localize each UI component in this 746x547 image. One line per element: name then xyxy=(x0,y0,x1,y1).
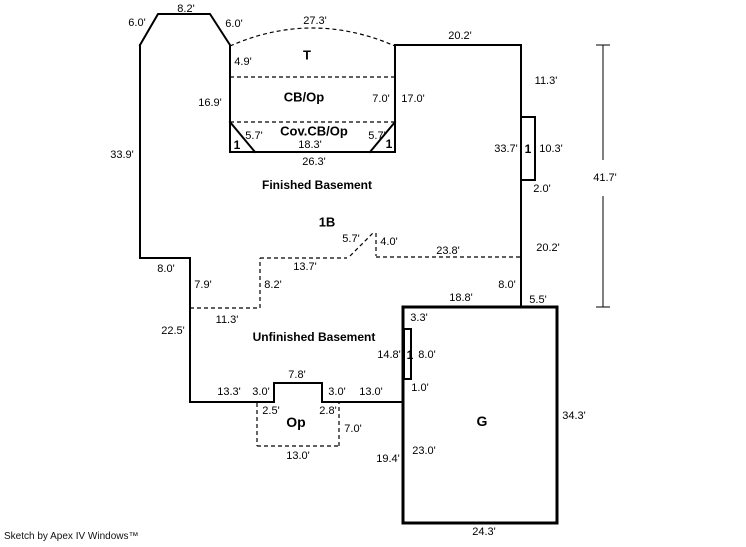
dim-deck-27-3: 27.3' xyxy=(303,15,327,27)
area-label-finished-basement: Finished Basement xyxy=(262,178,372,192)
dim-17-0: 17.0' xyxy=(401,93,425,105)
dim-3-0-right: 3.0' xyxy=(328,386,345,398)
area-label-cb-op: CB/Op xyxy=(284,90,325,105)
dim-13-0-bottom: 13.0' xyxy=(286,450,310,462)
dim-2-8: 2.8' xyxy=(319,405,336,417)
dim-13-3: 13.3' xyxy=(217,386,241,398)
dim-13-7: 13.7' xyxy=(293,261,317,273)
area-label-unfinished-basement: Unfinished Basement xyxy=(253,330,376,344)
area-label-op: Op xyxy=(286,414,305,430)
dim-3-0-left: 3.0' xyxy=(252,386,269,398)
dim-top-8-2: 8.2' xyxy=(177,3,194,15)
area-label-cov-cb-op: Cov.CB/Op xyxy=(280,124,348,139)
mark-1-port-right: 1 xyxy=(525,142,532,156)
dim-24-3: 24.3' xyxy=(472,526,496,538)
dim-18-8: 18.8' xyxy=(449,292,473,304)
mark-1-right: 1 xyxy=(386,137,393,151)
dim-8-0-left: 8.0' xyxy=(157,263,174,275)
dim-7-8: 7.8' xyxy=(288,369,305,381)
dim-4-9: 4.9' xyxy=(234,56,251,68)
dim-20-2-lower: 20.2' xyxy=(536,242,560,254)
dim-11-3-dashed: 11.3' xyxy=(216,314,239,326)
dim-1-0: 1.0' xyxy=(411,382,428,394)
dim-10-3: 10.3' xyxy=(539,143,563,155)
dim-33-7: 33.7' xyxy=(494,143,518,155)
floorplan-svg: 41.7'8.2'6.0'6.0'27.3'T4.9'CB/Op7.0'17.0… xyxy=(0,0,746,547)
floorplan-sketch: 41.7'8.2'6.0'6.0'27.3'T4.9'CB/Op7.0'17.0… xyxy=(0,0,746,547)
dim-2-0: 2.0' xyxy=(533,183,550,195)
dim-13-0-top: 13.0' xyxy=(359,386,383,398)
dim-19-4: 19.4' xyxy=(376,453,400,465)
dim-26-3: 26.3' xyxy=(302,156,326,168)
dim-33-9: 33.9' xyxy=(110,149,134,161)
dim-4-0: 4.0' xyxy=(380,236,397,248)
dim-slant-right-6-0: 6.0' xyxy=(225,18,242,30)
mark-1-port-garage: 1 xyxy=(407,348,414,362)
area-label-deck: T xyxy=(303,48,311,63)
dim-23-0: 23.0' xyxy=(412,445,436,457)
sketch-credit: Sketch by Apex IV Windows™ xyxy=(4,531,139,542)
dim-5-5: 5.5' xyxy=(529,294,546,306)
dim-5-7-right: 5.7' xyxy=(368,130,385,142)
dim-34-3: 34.3' xyxy=(562,410,586,422)
dim-7-0: 7.0' xyxy=(372,93,389,105)
dim-5-7-left: 5.7' xyxy=(245,130,262,142)
dim-14-8: 14.8' xyxy=(377,349,401,361)
dim-5-7-break: 5.7' xyxy=(342,233,359,245)
dim-3-3: 3.3' xyxy=(410,312,427,324)
sketch-background xyxy=(0,0,746,547)
dim-8-2-dashed: 8.2' xyxy=(264,279,281,291)
dim-11-3-right: 11.3' xyxy=(535,75,558,87)
dim-20-2-top: 20.2' xyxy=(448,30,472,42)
dim-8-0-right: 8.0' xyxy=(498,279,515,291)
overall-dimension-41-7-label: 41.7' xyxy=(593,172,617,184)
dim-23-8: 23.8' xyxy=(436,245,460,257)
dim-7-0-op: 7.0' xyxy=(344,423,361,435)
dim-2-5: 2.5' xyxy=(262,405,279,417)
dim-16-9: 16.9' xyxy=(198,97,222,109)
dim-7-9: 7.9' xyxy=(194,279,211,291)
dim-18-3: 18.3' xyxy=(298,139,322,151)
dim-22-5: 22.5' xyxy=(161,325,185,337)
dim-8-0-garage: 8.0' xyxy=(418,349,435,361)
area-label-garage: G xyxy=(477,413,488,429)
dim-slant-left-6-0: 6.0' xyxy=(128,17,145,29)
area-label-1b: 1B xyxy=(319,215,336,230)
mark-1-left: 1 xyxy=(234,138,241,152)
